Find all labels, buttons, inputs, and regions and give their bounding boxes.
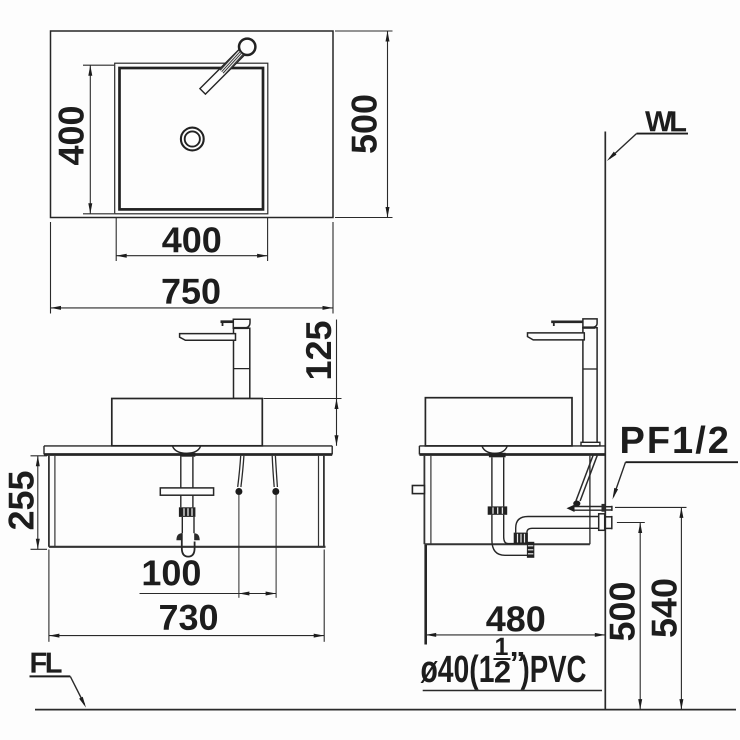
svg-text:500: 500	[344, 94, 385, 154]
svg-text:400: 400	[162, 219, 222, 260]
svg-text:100: 100	[141, 552, 201, 593]
svg-text:ø40(1: ø40(1	[420, 649, 494, 691]
svg-text:750: 750	[161, 271, 221, 312]
svg-text:500: 500	[602, 581, 643, 641]
svg-text:FL: FL	[29, 648, 62, 680]
svg-text:125: 125	[298, 320, 339, 380]
svg-text:730: 730	[158, 597, 218, 638]
svg-text:PF1/2: PF1/2	[619, 420, 730, 462]
svg-text:400: 400	[51, 105, 92, 165]
svg-text:255: 255	[1, 470, 42, 530]
svg-text:)PVC: )PVC	[520, 649, 586, 691]
svg-text:540: 540	[644, 578, 685, 638]
